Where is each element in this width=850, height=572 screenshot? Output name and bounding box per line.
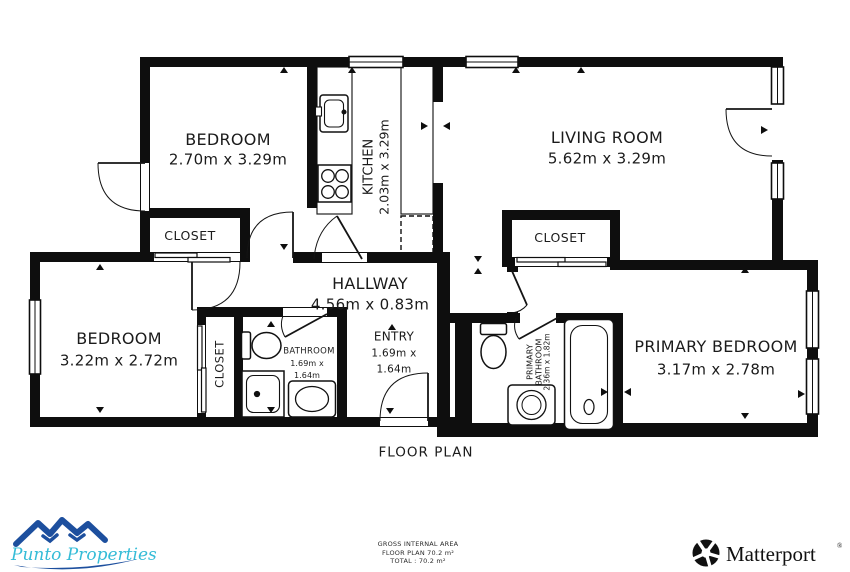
faucet-dot [342,110,346,114]
mountains-icon [16,520,105,544]
label-bedroom-left-dims: 3.22m x 2.72m [60,352,178,371]
toilet-bowl [252,333,281,359]
floor-plan-canvas [0,0,850,572]
label-hallway-dims: 4.56m x 0.83m [311,296,429,315]
label-closet-left: CLOSET [213,340,226,388]
footer-gross-area: GROSS INTERNAL AREA [378,540,459,548]
kitchen-peninsula [401,65,433,214]
label-primary-bathroom-block: PRIMARY BATHROOM 2.36m x 1.82m [526,333,553,390]
kitchen-appliance-dashed [401,216,433,257]
label-kitchen-block: KITCHEN 2.03m x 3.29m [362,119,391,214]
registered-mark: ® [837,542,843,550]
label-bedroom-top: BEDROOM [185,130,271,150]
label-closet-primary: CLOSET [534,230,586,246]
label-closet-top: CLOSET [164,228,216,244]
matterport-icon [693,540,720,567]
shower-drain [255,392,260,397]
footer-total: TOTAL : 70.2 m² [390,557,445,565]
toilet-tank [242,332,251,359]
label-hallway: HALLWAY [332,274,408,294]
bathtub [565,320,614,430]
label-entry-dims2: 1.64m [376,363,411,376]
label-bathroom-dims2: 1.64m [294,371,320,381]
label-primary-bedroom-dims: 3.17m x 2.78m [657,361,775,380]
label-entry-dims1: 1.69m x [371,347,416,360]
primary-toilet-tank [481,324,507,335]
label-kitchen: KITCHEN [362,119,377,214]
matterport-wordmark: Matterport [726,542,816,566]
primary-toilet-bowl [481,336,506,369]
plan-title: FLOOR PLAN [378,445,473,462]
label-primary-bedroom: PRIMARY BEDROOM [634,337,797,357]
label-primary-bathroom-1: PRIMARY [526,333,535,390]
label-bathroom: BATHROOM [283,347,335,358]
footer-floor-plan: FLOOR PLAN 70.2 m² [382,548,454,556]
label-primary-bathroom-dims: 2.36m x 1.82m [544,333,553,390]
agency-name-text: Punto Properties [10,545,157,565]
label-living-room-dims: 5.62m x 3.29m [548,150,666,169]
walls [30,57,818,437]
punto-properties-logo: Punto Properties [10,510,162,572]
label-entry: ENTRY [374,330,414,345]
label-bedroom-top-dims: 2.70m x 3.29m [169,151,287,170]
floor-plan-page: BEDROOM 2.70m x 3.29m KITCHEN 2.03m x 3.… [0,0,850,572]
label-living-room: LIVING ROOM [551,128,663,148]
matterport-logo: Matterport ® [690,534,848,570]
label-bathroom-dims1: 1.69m x [290,359,324,369]
label-bedroom-left: BEDROOM [76,329,162,349]
label-kitchen-dims: 2.03m x 3.29m [377,119,391,214]
door-leaf-bathroom [285,314,327,337]
